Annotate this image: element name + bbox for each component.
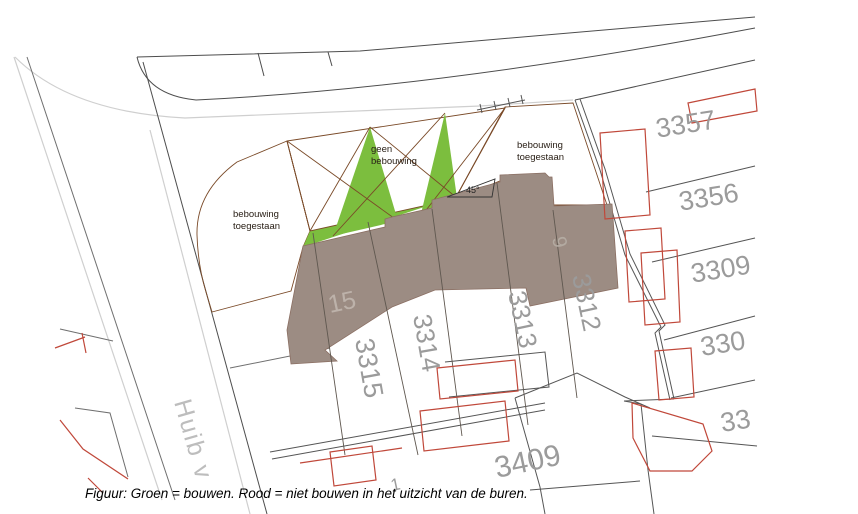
red-building-3356 (625, 228, 665, 302)
west-red-line (60, 420, 128, 493)
boundary-lower (624, 401, 654, 514)
street-tick-marks (258, 52, 332, 76)
parcel-label-33xx: 33 (718, 404, 752, 438)
red-building-bottom-b (420, 401, 509, 451)
corner-curve (137, 57, 196, 100)
red-boundary-line (300, 448, 402, 463)
red-building-bottom-c (330, 446, 376, 486)
labels: bebouwing toegestaan geen bebouwing bebo… (85, 105, 753, 501)
top-street-near-curb (196, 28, 755, 100)
parcel-label-3357: 3357 (654, 105, 718, 144)
parcel-label-3309: 3309 (689, 250, 753, 289)
red-building-bottom-a (437, 360, 518, 399)
building-footprint (287, 173, 618, 364)
zone-right-label-1: bebouwing (517, 140, 563, 151)
zone-left-label-2: toegestaan (233, 221, 280, 232)
parcel-front-line-right (575, 60, 755, 100)
sidewalk-line (15, 57, 480, 118)
red-building-3309 (655, 348, 694, 400)
parcel-label-3314: 3314 (407, 312, 447, 374)
zone-mid-label-2: bebouwing (371, 156, 417, 167)
parcel-label-3315: 3315 (349, 336, 389, 400)
zoning-map: bebouwing toegestaan geen bebouwing bebo… (0, 0, 858, 514)
divider-330x-33xx (671, 380, 755, 398)
parcel-label-3356: 3356 (677, 178, 741, 217)
zone-right-label-2: toegestaan (517, 152, 564, 163)
divider-33xx-lower (652, 436, 757, 446)
parcels-west (55, 329, 128, 493)
parcel-label-330x: 330 (698, 325, 747, 362)
angle-label: 45° (466, 185, 480, 195)
house-number-15: 15 (325, 286, 358, 319)
figure-caption: Figuur: Groen = bouwen. Rood = niet bouw… (85, 486, 528, 501)
top-street-far-curb (137, 17, 755, 57)
west-parcel-line (75, 408, 128, 477)
zone-mid-label-1: geen (371, 144, 392, 155)
huib-street-west-curb (27, 57, 175, 500)
street-name-label: Huib v (168, 396, 218, 483)
west-red-line (55, 333, 86, 353)
map-canvas: bebouwing toegestaan geen bebouwing bebo… (0, 0, 858, 514)
zone-left-label-1: bebouwing (233, 209, 279, 220)
parcel-label-3409: 3409 (492, 439, 564, 485)
street-edge-west-outer (14, 57, 162, 500)
